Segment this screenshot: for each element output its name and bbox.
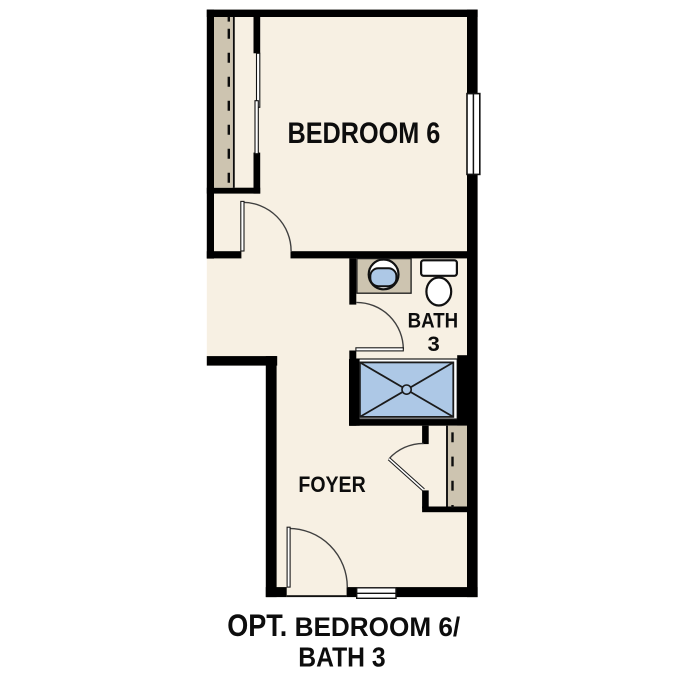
svg-text:BATH 3: BATH 3 xyxy=(298,641,385,672)
svg-text:FOYER: FOYER xyxy=(298,472,365,497)
svg-text:BEDROOM 6: BEDROOM 6 xyxy=(288,117,441,150)
svg-text:3: 3 xyxy=(428,332,440,356)
svg-text:BEDROOM 6/: BEDROOM 6/ xyxy=(295,612,461,642)
svg-text:BATH: BATH xyxy=(408,309,459,333)
svg-text:OPT.: OPT. xyxy=(227,607,287,643)
